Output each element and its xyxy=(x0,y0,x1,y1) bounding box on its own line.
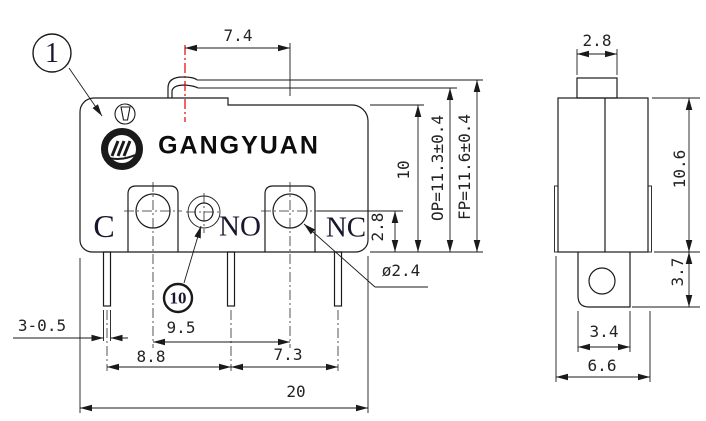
screw-icon xyxy=(115,104,135,124)
terminal-label-no: NO xyxy=(219,213,261,242)
gangyuan-logo-icon xyxy=(105,132,140,167)
terminal-pin-nc xyxy=(335,252,342,306)
dim-side-height: 10.6 xyxy=(672,150,688,189)
terminal-pin-no xyxy=(228,252,235,306)
mount-bracket xyxy=(578,252,630,307)
dim-pitch-c-no: 8.8 xyxy=(137,349,166,365)
dim-front-width: 20 xyxy=(286,384,305,400)
dim-side-depth: 6.6 xyxy=(588,358,617,374)
dim-front-height: 10 xyxy=(396,160,412,179)
dim-side-plunger-width: 2.8 xyxy=(583,33,612,49)
terminal-label-c: C xyxy=(93,210,114,242)
dim-hole-to-bottom: 2.8 xyxy=(370,213,386,242)
dim-mount-hole-dia: ø2.4 xyxy=(382,263,421,279)
terminal-label-nc: NC xyxy=(326,214,366,243)
dim-pitch-no-nc: 7.3 xyxy=(274,347,303,363)
bracket-hole xyxy=(589,268,615,294)
brand-logo-text: GANGYUAN xyxy=(158,132,320,161)
side-dimension-lines xyxy=(556,49,700,382)
technical-drawing-canvas: 7.4 10 OP=11.3±0.4 FP=11.6±0.4 2.8 ø2.4 … xyxy=(0,0,706,421)
dim-bracket-height: 3.7 xyxy=(670,258,686,287)
side-view-body xyxy=(555,78,652,307)
dim-plunger-offset: 7.4 xyxy=(224,28,253,44)
balloon-10-number: 10 xyxy=(170,290,187,307)
balloon-callouts xyxy=(33,34,201,312)
balloon-1-number: 1 xyxy=(45,40,59,68)
dim-terminal-thickness: 3-0.5 xyxy=(18,318,66,334)
front-view-body xyxy=(80,77,368,306)
dim-mount-hole-spacing: 9.5 xyxy=(167,320,196,336)
dim-free-position: FP=11.6±0.4 xyxy=(457,114,473,220)
terminal-pin-c xyxy=(104,252,111,306)
dim-bracket-width: 3.4 xyxy=(590,324,619,340)
dim-operating-position: OP=11.3±0.4 xyxy=(430,115,446,221)
side-plunger xyxy=(577,78,617,98)
